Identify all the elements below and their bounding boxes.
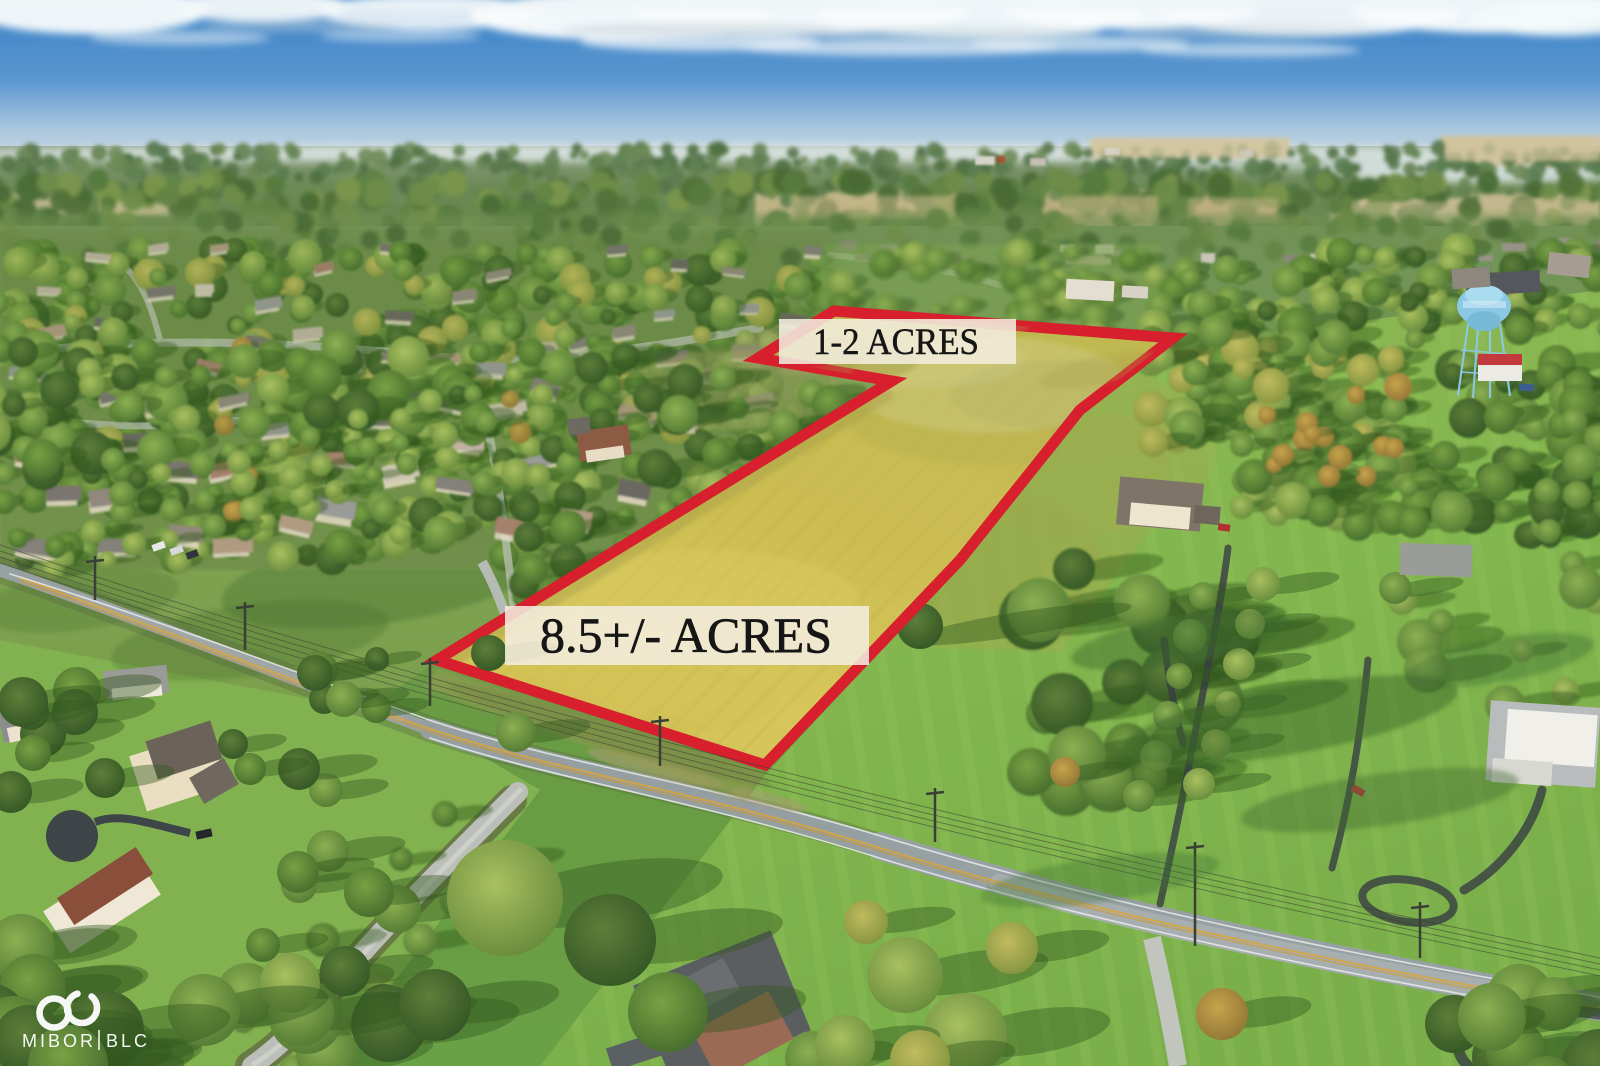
svg-text:BLC: BLC xyxy=(106,1031,150,1051)
svg-text:MIBOR: MIBOR xyxy=(22,1031,96,1051)
svg-text:8.5+/- ACRES: 8.5+/- ACRES xyxy=(540,607,832,663)
svg-text:1-2 ACRES: 1-2 ACRES xyxy=(813,322,979,363)
